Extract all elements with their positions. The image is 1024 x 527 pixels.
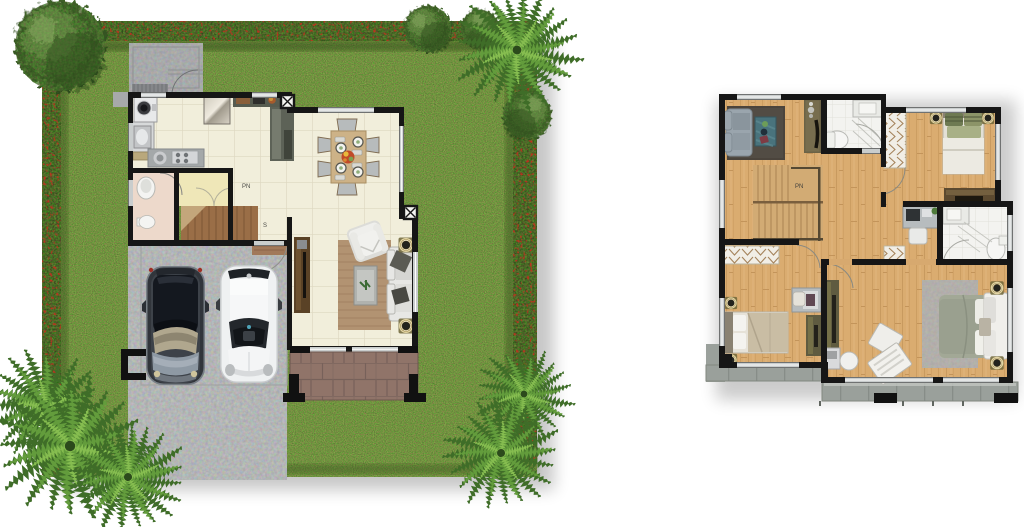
svg-text:PN: PN: [795, 184, 803, 190]
svg-text:PN: PN: [242, 184, 250, 190]
svg-text:S: S: [263, 223, 267, 229]
